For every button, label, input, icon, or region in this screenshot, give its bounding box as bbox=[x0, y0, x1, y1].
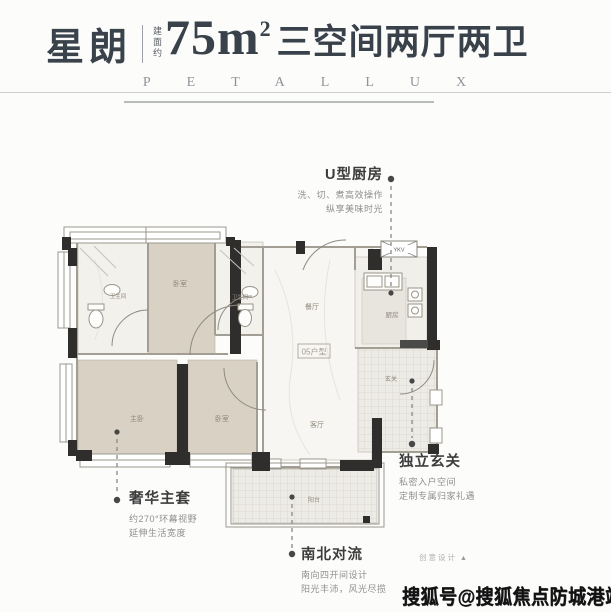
callout-master: 奢华主套 约270°环幕视野 延伸生活宽度 bbox=[129, 487, 197, 541]
watermark: 搜狐号@搜狐焦点防城港站 bbox=[402, 581, 611, 610]
room-label-kitchen: 厨房 bbox=[386, 310, 399, 319]
callout-airflow-desc2: 阳光丰沛，风光尽揽 bbox=[301, 583, 387, 597]
room-label-living: 客厅 bbox=[310, 420, 324, 429]
callout-foyer-desc1: 私密入户空间 bbox=[399, 476, 475, 490]
room-label-master: 主卧 bbox=[130, 414, 144, 423]
duct-box: YKV bbox=[381, 241, 417, 257]
callout-master-desc2: 延伸生活宽度 bbox=[129, 527, 197, 541]
triangle-icon: ▲ bbox=[460, 555, 469, 562]
callout-airflow-title: 南北对流 bbox=[301, 543, 387, 564]
room-label-balcony: 阳台 bbox=[308, 496, 320, 504]
callout-master-title: 奢华主套 bbox=[129, 487, 197, 508]
callout-foyer-desc2: 定制专属归家礼遇 bbox=[399, 490, 475, 504]
floor-plan: YKV 卫生间 卧室 卫生间 餐厅 bbox=[0, 0, 611, 612]
room-label-dining: 餐厅 bbox=[305, 302, 319, 311]
callout-kitchen-title: U型厨房 bbox=[297, 163, 383, 184]
floorplan-poster: 星朗 建面约 75m2三空间两厅两卫 PETALLUX bbox=[0, 0, 611, 612]
callout-kitchen-desc: 洗、切、煮高效操作 纵享美味时光 bbox=[297, 189, 383, 217]
room-label-foyer: 玄关 bbox=[385, 375, 397, 383]
callout-master-desc: 约270°环幕视野 延伸生活宽度 bbox=[129, 513, 197, 541]
design-credit: 创意设计▲ bbox=[419, 552, 469, 563]
callout-airflow-desc: 南向四开间设计 阳光丰沛，风光尽揽 bbox=[301, 569, 387, 597]
callout-airflow-desc1: 南向四开间设计 bbox=[301, 569, 387, 583]
callout-master-desc1: 约270°环幕视野 bbox=[129, 513, 197, 527]
duct-label: YKV bbox=[393, 248, 404, 254]
callout-foyer-title: 独立玄关 bbox=[399, 450, 475, 471]
callout-foyer: 独立玄关 私密入户空间 定制专属归家礼遇 bbox=[399, 450, 475, 504]
room-label-bath1: 卫生间 bbox=[110, 292, 127, 300]
room-label-bath2: 卫生间 bbox=[232, 293, 249, 301]
unit-label: 05户型 bbox=[302, 347, 327, 357]
callout-foyer-desc: 私密入户空间 定制专属归家礼遇 bbox=[399, 476, 475, 504]
design-credit-text: 创意设计 bbox=[419, 553, 457, 562]
room-label-bedroom2: 卧室 bbox=[215, 414, 229, 423]
callout-kitchen: U型厨房 洗、切、煮高效操作 纵享美味时光 bbox=[297, 163, 383, 217]
room-label-bedroom1: 卧室 bbox=[173, 279, 187, 288]
callout-kitchen-desc1: 洗、切、煮高效操作 bbox=[297, 189, 383, 203]
callout-airflow: 南北对流 南向四开间设计 阳光丰沛，风光尽揽 bbox=[301, 543, 387, 597]
callout-kitchen-desc2: 纵享美味时光 bbox=[297, 203, 383, 217]
